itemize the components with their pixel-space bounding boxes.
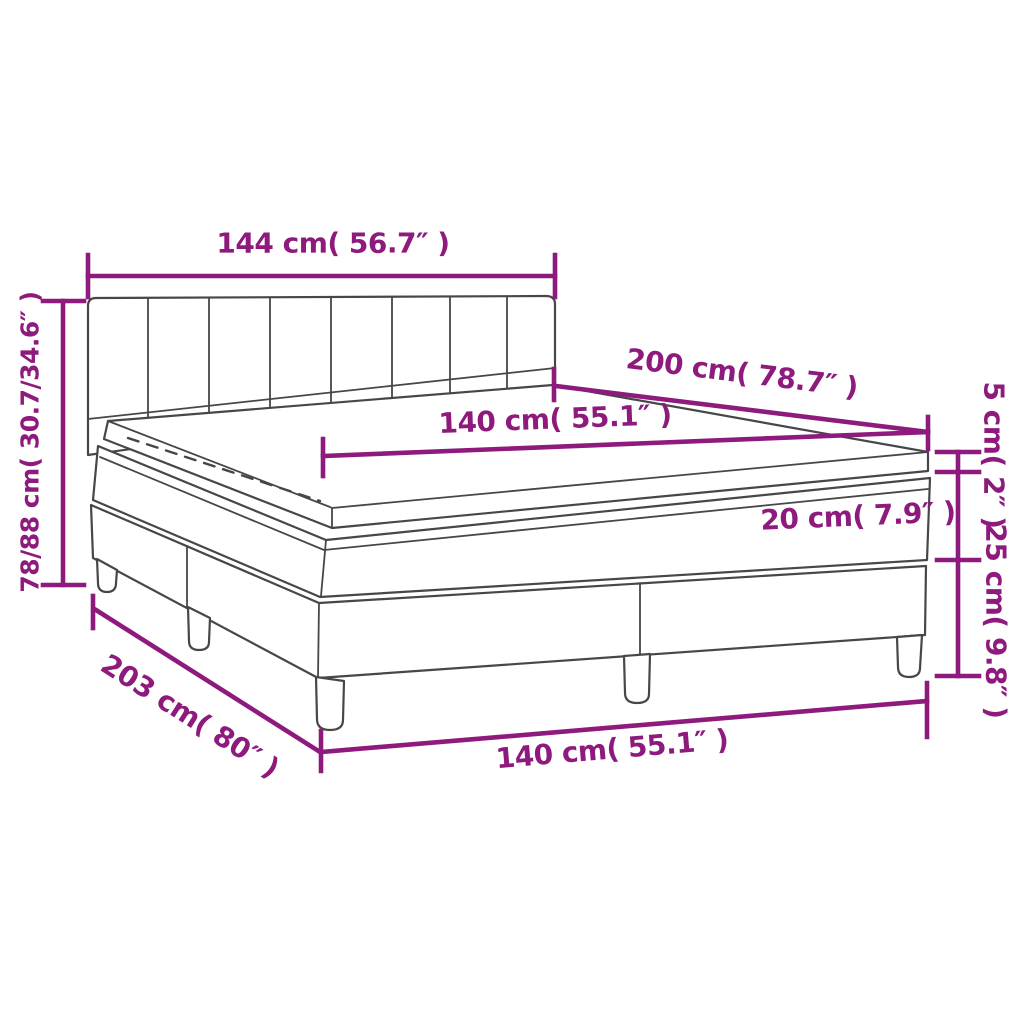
dimension-right-heights: 5 cm( 2″ ) 25 cm( 9.8″ ): [937, 381, 1013, 718]
leg-front-corner: [316, 677, 344, 730]
dimension-total-height: 78/88 cm( 30.7/34.6″ ): [16, 291, 85, 592]
base-corner-edge: [318, 603, 319, 678]
bed-dimension-diagram: 144 cm( 56.7″ ) 78/88 cm( 30.7/34.6″ ) 2…: [0, 0, 1024, 1024]
headboard-width-label: 144 cm( 56.7″ ): [216, 227, 449, 260]
dimension-frame-width-bottom: 140 cm( 55.1″ ): [321, 683, 927, 775]
topper-height-label: 5 cm( 2″ ): [978, 381, 1011, 528]
leg-foot-middle: [624, 654, 650, 703]
total-height-label: 78/88 cm( 30.7/34.6″ ): [16, 291, 45, 592]
frame-width-bottom-label: 140 cm( 55.1″ ): [494, 723, 729, 775]
diagram-canvas: 144 cm( 56.7″ ) 78/88 cm( 30.7/34.6″ ) 2…: [0, 0, 1024, 1024]
base-height-label: 25 cm( 9.8″ ): [980, 523, 1013, 718]
leg-foot-right: [897, 635, 922, 677]
bed-length-label: 200 cm( 78.7″ ): [624, 342, 859, 404]
dimension-headboard-width: 144 cm( 56.7″ ): [88, 227, 555, 298]
